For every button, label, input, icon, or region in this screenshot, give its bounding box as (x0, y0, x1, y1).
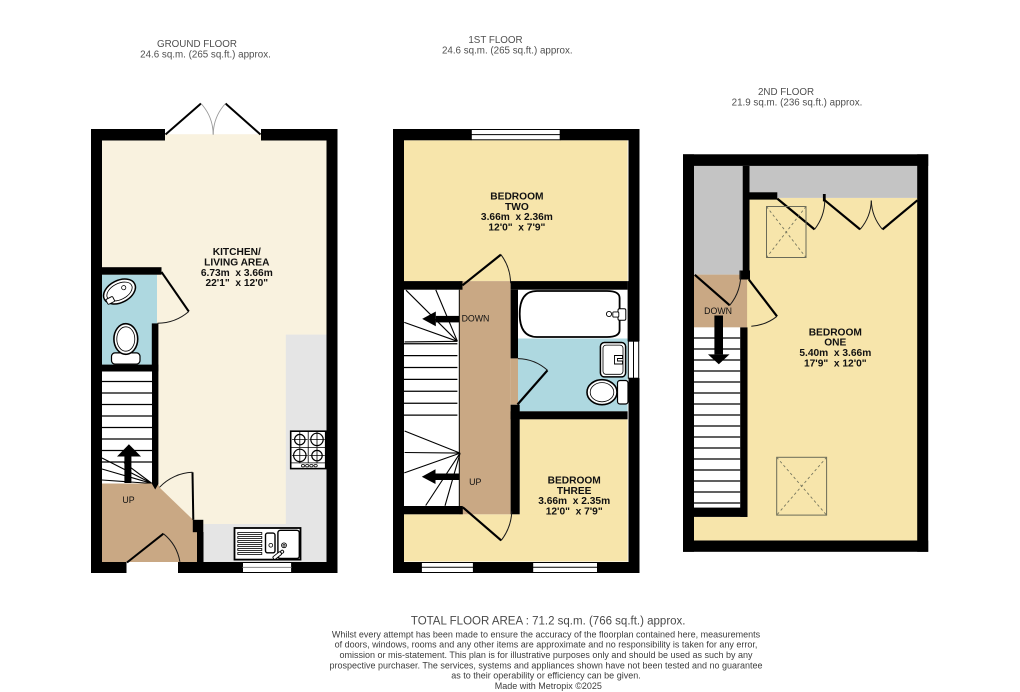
svg-text:21.9 sq.m. (236 sq.ft.) approx: 21.9 sq.m. (236 sq.ft.) approx. (732, 97, 863, 108)
svg-text:prospective purchaser. The ser: prospective purchaser. The services, sys… (329, 660, 762, 670)
svg-text:as to their operability or eff: as to their operability or efficiency ca… (451, 671, 640, 681)
svg-text:TOTAL FLOOR AREA : 71.2 sq.m.: TOTAL FLOOR AREA : 71.2 sq.m. (766 sq.ft… (411, 616, 686, 628)
svg-text:17'9" x 12'0": 17'9" x 12'0" (804, 358, 867, 369)
svg-text:12'0" x 7'9": 12'0" x 7'9" (488, 223, 545, 234)
svg-text:24.6 sq.m. (265 sq.ft.) approx: 24.6 sq.m. (265 sq.ft.) approx. (442, 45, 573, 56)
svg-text:of doors, windows, rooms and a: of doors, windows, rooms and any other i… (335, 640, 758, 650)
svg-text:UP: UP (469, 477, 481, 487)
svg-text:omission or mis-statement. Thi: omission or mis-statement. This plan is … (339, 650, 753, 660)
svg-text:Made with Metropix ©2025: Made with Metropix ©2025 (495, 681, 602, 691)
svg-text:LIVING AREA: LIVING AREA (204, 257, 270, 268)
svg-text:Whilst every attempt has been: Whilst every attempt has been made to en… (332, 629, 761, 639)
svg-text:UP: UP (122, 495, 134, 505)
svg-text:22'1" x 12'0": 22'1" x 12'0" (205, 278, 268, 289)
svg-text:24.6 sq.m. (265 sq.ft.) approx: 24.6 sq.m. (265 sq.ft.) approx. (140, 50, 271, 61)
svg-text:DOWN: DOWN (462, 314, 490, 324)
svg-text:12'0" x 7'9": 12'0" x 7'9" (546, 506, 603, 517)
svg-text:2ND FLOOR: 2ND FLOOR (758, 87, 814, 98)
svg-text:DOWN: DOWN (704, 306, 732, 316)
svg-text:1ST FLOOR: 1ST FLOOR (468, 35, 522, 46)
